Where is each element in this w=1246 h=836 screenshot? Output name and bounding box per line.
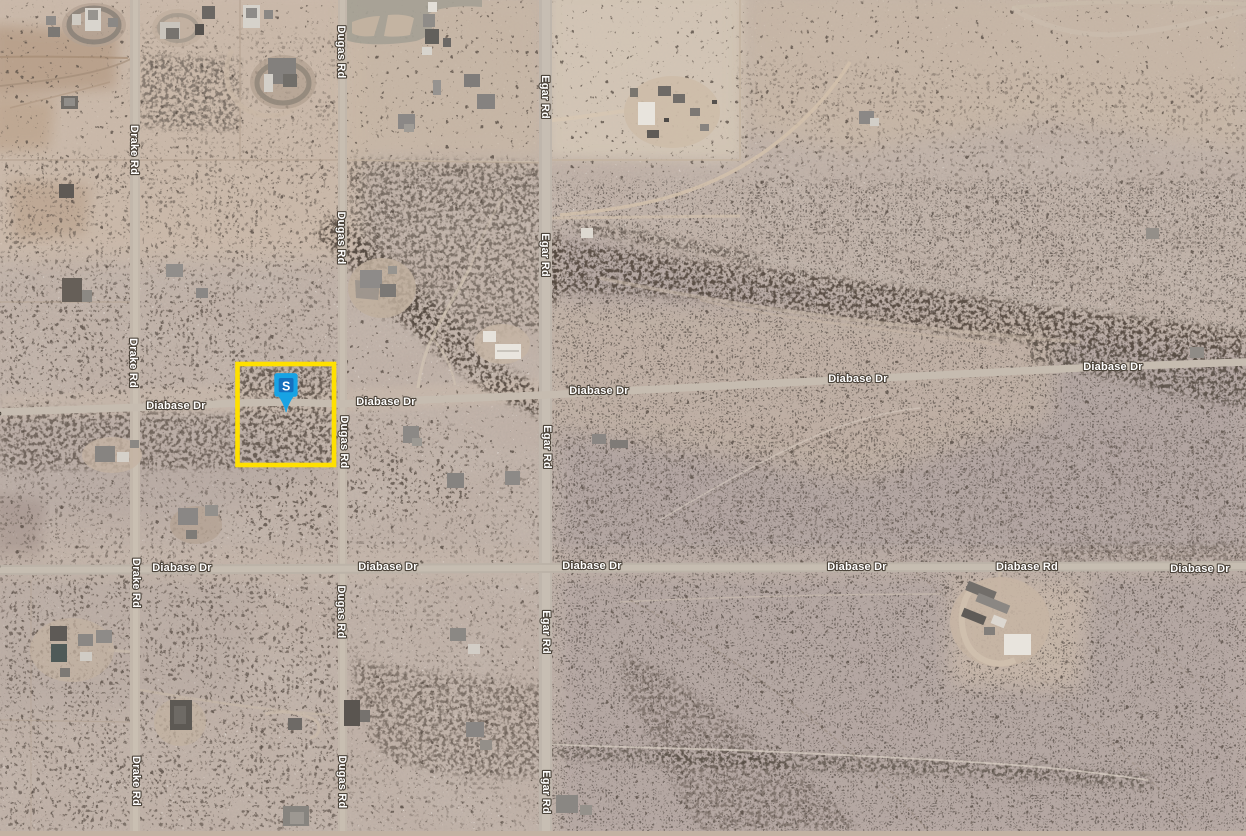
svg-text:Drake Rd: Drake Rd (128, 125, 140, 175)
svg-text:Egar Rd: Egar Rd (540, 770, 552, 814)
svg-text:Diabase Dr: Diabase Dr (1170, 563, 1230, 575)
svg-text:Egar Rd: Egar Rd (540, 610, 552, 654)
svg-text:Diabase Dr: Diabase Dr (152, 562, 212, 574)
svg-text:Drake Rd: Drake Rd (127, 338, 139, 388)
svg-text:Diabase Dr: Diabase Dr (562, 560, 622, 572)
svg-text:Diabase Dr: Diabase Dr (356, 396, 416, 408)
svg-text:Egar Rd: Egar Rd (539, 233, 551, 277)
svg-text:Diabase Dr: Diabase Dr (569, 385, 629, 397)
svg-text:Egar Rd: Egar Rd (541, 425, 553, 469)
svg-text:Dugas Rd: Dugas Rd (338, 416, 350, 469)
svg-text:Dugas Rd: Dugas Rd (335, 26, 347, 79)
svg-text:Dugas Rd: Dugas Rd (336, 756, 348, 809)
svg-text:Egar Rd: Egar Rd (539, 75, 551, 119)
svg-text:Diabase Dr: Diabase Dr (828, 373, 888, 385)
svg-text:Diabase Dr: Diabase Dr (827, 561, 887, 573)
svg-text:Dugas Rd: Dugas Rd (335, 586, 347, 639)
svg-text:Diabase Dr: Diabase Dr (146, 400, 206, 412)
svg-text:Diabase Dr: Diabase Dr (1083, 361, 1143, 373)
svg-text:Drake Rd: Drake Rd (130, 558, 142, 608)
svg-text:Diabase Rd: Diabase Rd (996, 561, 1058, 573)
svg-text:Drake Rd: Drake Rd (130, 756, 142, 806)
svg-text:S: S (282, 379, 290, 393)
svg-text:Diabase Dr: Diabase Dr (358, 561, 418, 573)
svg-text:Dugas Rd: Dugas Rd (335, 212, 347, 265)
